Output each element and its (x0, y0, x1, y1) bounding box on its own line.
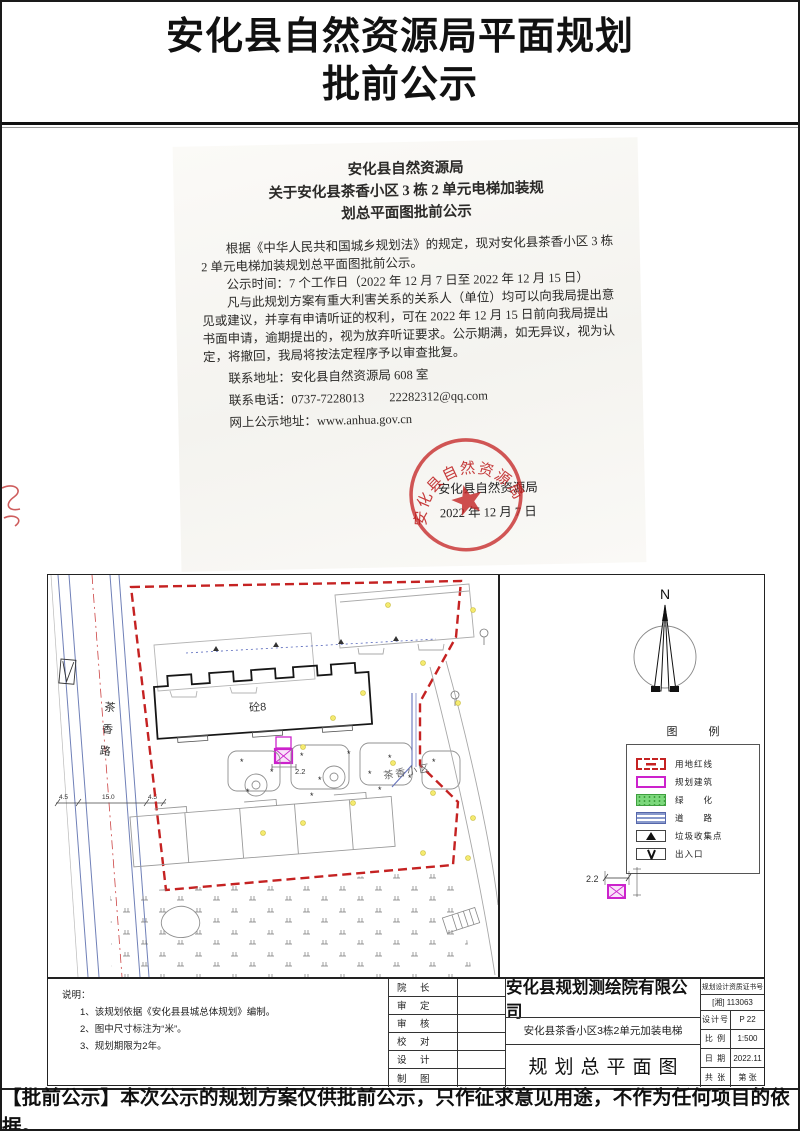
svg-text:*: * (270, 767, 274, 777)
site-plan-drawing: 4.5 15.0 4.5 (48, 575, 498, 977)
legend-title: 图 例 (626, 723, 760, 739)
greenery-icon (636, 794, 666, 806)
svg-text:*: * (300, 751, 304, 761)
pond-blob (161, 906, 199, 937)
legend-row: 规划建筑 (636, 776, 750, 788)
note-3: 3、规划期限为2年。 (62, 1038, 382, 1055)
elevator-detail: 2.2 (581, 855, 661, 917)
roles-table: 院 长 审 定 审 核 校 对 设 计 制 图 (388, 979, 505, 1087)
page-header: 安化县自然资源局平面规划 批前公示 (2, 2, 798, 122)
role-label: 审 核 (389, 1015, 458, 1032)
svg-text:*: * (432, 757, 436, 767)
scale-value: 1:500 (731, 1030, 764, 1048)
redline-icon (636, 758, 666, 770)
legend-row: 道 路 (636, 812, 750, 824)
dim-left: 4.5 (59, 794, 68, 801)
svg-text:*: * (347, 749, 351, 759)
garbage-point-icon (636, 830, 666, 842)
legend-row: 垃圾收集点 (636, 830, 750, 842)
north-arrow: N (623, 585, 708, 700)
project-name: 安化县茶香小区3栋2单元加装电梯 (506, 1017, 700, 1044)
title-block: 说明： 1、该规划依据《安化县县城总体规划》编制。 2、图中尺寸标注为“米”。 … (48, 979, 764, 1087)
scale-label: 比 例 (701, 1030, 731, 1048)
cert-label: 规划设计资质证书号 (701, 979, 764, 994)
page-title-line2: 批前公示 (2, 62, 798, 110)
notice-scan: 安化县自然资源局 关于安化县茶香小区 3 栋 2 单元电梯加装规 划总平面图批前… (173, 137, 647, 572)
north-label: N (660, 586, 670, 602)
svg-text:*: * (318, 775, 322, 785)
notice-paragraph-3: 凡与此规划方案有重大利害关系的关系人（单位）均可以向我局提出意见或建议，并享有申… (202, 286, 616, 367)
design-no-value: P 22 (731, 1011, 764, 1029)
legend-label: 道 路 (675, 812, 713, 824)
main-building-label: 砼8 (249, 700, 267, 714)
svg-text:*: * (240, 757, 244, 767)
legend-label: 规划建筑 (675, 776, 713, 788)
footer-note: 【批前公示】本次公示的规划方案仅供批前公示，只作征求意见用途，不作为任何项目的依… (2, 1088, 798, 1129)
notes-title: 说明： (62, 987, 382, 1004)
light-dots (261, 603, 476, 861)
legend-label: 垃圾收集点 (675, 830, 723, 842)
road-icon (636, 812, 666, 824)
lamp-symbols (451, 629, 488, 706)
cert-value: [湘] 113063 (701, 994, 764, 1010)
role-label: 校 对 (389, 1033, 458, 1050)
header-divider (2, 122, 798, 128)
dim-mid: 15.0 (102, 794, 115, 801)
contact-web: 网上公示地址：www.anhua.gov.cn (204, 406, 617, 433)
legend-row: 用地红线 (636, 758, 750, 770)
legend-label: 出入口 (675, 848, 704, 860)
fence-line (186, 639, 436, 653)
notes-panel: 说明： 1、该规划依据《安化县县城总体规划》编制。 2、图中尺寸标注为“米”。 … (48, 979, 388, 1087)
note-1: 1、该规划依据《安化县县城总体规划》编制。 (62, 1004, 382, 1021)
seal-graphic: 安化县自然资源局 (391, 420, 541, 570)
detail-dim-label: 2.2 (586, 874, 599, 884)
svg-text:*: * (378, 785, 382, 795)
note-2: 2、图中尺寸标注为“米”。 (62, 1021, 382, 1038)
official-seal: 安化县自然资源局 (391, 420, 541, 570)
plan-sheet: 4.5 15.0 4.5 (47, 574, 765, 1086)
design-no-label: 设计号 (701, 1011, 731, 1029)
entrance-marker-icon (59, 659, 76, 684)
elevator-dim-label: 2.2 (295, 767, 305, 776)
page-title-line1: 安化县自然资源局平面规划 (2, 14, 798, 62)
role-label: 设 计 (389, 1051, 458, 1068)
legend-label: 用地红线 (675, 758, 713, 770)
role-label: 院 长 (389, 979, 458, 996)
role-label: 审 定 (389, 997, 458, 1014)
company-name: 安化县规划测绘院有限公司 (506, 979, 700, 1017)
building-main: 砼8 (153, 662, 372, 744)
svg-text:*: * (246, 787, 250, 797)
svg-text:*: * (368, 769, 372, 779)
legend-row: 绿 化 (636, 794, 750, 806)
svg-text:*: * (310, 791, 314, 801)
building-northwest (154, 633, 315, 697)
planned-building-icon (636, 776, 666, 788)
company-panel: 安化县规划测绘院有限公司 安化县茶香小区3栋2单元加装电梯 规划总平面图 (505, 979, 700, 1087)
notice-page: 安化县自然资源局平面规划 批前公示 安化县自然资源局 关于安化县茶香小区 3 栋… (0, 0, 800, 1131)
date-label: 日 期 (701, 1049, 731, 1067)
seal-star-icon (448, 481, 486, 518)
sheet-divider (498, 575, 500, 977)
date-value: 2022.11 (731, 1049, 764, 1067)
sheet-info-panel: 规划设计资质证书号 [湘] 113063 设计号P 22 比 例1:500 日 … (700, 979, 764, 1087)
red-margin-mark (0, 480, 36, 532)
legend: 图 例 用地红线 规划建筑 绿 化 道 路 (626, 723, 760, 874)
legend-label: 绿 化 (675, 794, 713, 806)
